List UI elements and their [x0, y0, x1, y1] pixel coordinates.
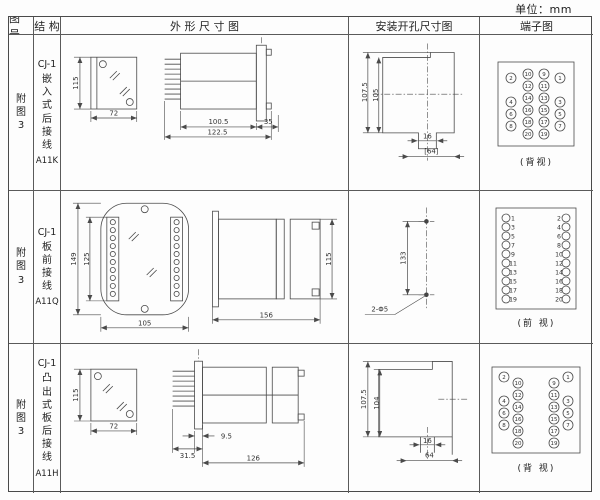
svg-text:6: 6 — [502, 410, 506, 416]
svg-text:19: 19 — [551, 440, 558, 446]
dim-front-width: 72 — [109, 422, 118, 430]
svg-text:12: 12 — [515, 392, 522, 398]
dim-front-width: 72 — [109, 109, 118, 117]
hole-size-label: 2-Φ5 — [371, 306, 388, 314]
svg-text:14: 14 — [525, 95, 532, 101]
row1-structure: CJ-1 嵌入式后接线 A11K — [34, 35, 61, 191]
svg-text:20: 20 — [555, 297, 563, 304]
svg-text:18: 18 — [555, 288, 563, 295]
model-label: CJ-1 — [38, 59, 57, 70]
model-code: A11K — [36, 156, 58, 166]
header-install: 安装开孔尺寸图 — [349, 17, 480, 35]
row3-terminal-cell: 2468101214161820911131517191357 (背 视) — [480, 344, 593, 493]
svg-text:4: 4 — [509, 99, 513, 105]
dim-cut-inner: 104 — [373, 395, 381, 409]
dim-span: 64 — [425, 451, 434, 459]
model-label: CJ-1 — [38, 227, 57, 238]
svg-text:12: 12 — [555, 261, 563, 268]
svg-text:12: 12 — [525, 83, 532, 89]
row1-fig-no: 附图3 — [9, 35, 34, 191]
svg-text:5: 5 — [511, 234, 515, 241]
terminal-caption: (背 视) — [518, 461, 556, 474]
svg-text:11: 11 — [541, 83, 548, 89]
dim-span: [64] — [424, 147, 439, 155]
dim-front-width: 105 — [138, 319, 151, 327]
svg-text:13: 13 — [509, 270, 517, 277]
svg-text:20: 20 — [515, 440, 522, 446]
row3-fig-no: 附图3 — [9, 344, 34, 493]
svg-text:2: 2 — [509, 75, 513, 81]
terminal-diagram-a11k: 2109112114141336161558181772019 — [480, 58, 593, 152]
dim-cut-outer: 107.5 — [361, 82, 369, 102]
svg-text:5: 5 — [558, 111, 562, 117]
row2-terminal-cell: 1357911131517192468101214161820 (前 视) — [480, 191, 593, 344]
svg-text:17: 17 — [509, 288, 517, 295]
svg-text:16: 16 — [515, 416, 522, 422]
row2-structure: CJ-1 板前接线 A11Q — [34, 191, 61, 344]
dim-flange: 9.5 — [221, 432, 232, 440]
row3-install-cell: 107.5 104 16 64 — [349, 344, 480, 493]
svg-text:3: 3 — [566, 398, 570, 404]
dim-cut-inner: 105 — [372, 88, 380, 101]
header-structure: 结 构 — [34, 17, 61, 35]
datasheet-page: 单位：mm 图 号 结 构 外 形 尺 寸 图 安装开孔尺寸图 端子图 附图3 … — [0, 0, 600, 500]
svg-text:1: 1 — [558, 75, 562, 81]
model-code: A11H — [35, 469, 58, 479]
svg-text:16: 16 — [555, 279, 563, 286]
svg-text:19: 19 — [541, 131, 548, 137]
svg-text:3: 3 — [558, 99, 562, 105]
row2-fig-no: 附图3 — [9, 191, 34, 344]
install-cutout-a11k: 107.5 105 16 [64] — [349, 37, 479, 189]
svg-text:19: 19 — [509, 297, 517, 304]
svg-text:10: 10 — [525, 71, 532, 77]
install-cutout-a11h: 107.5 104 16 64 — [349, 344, 479, 493]
svg-text:14: 14 — [555, 270, 563, 277]
unit-label: 单位：mm — [515, 1, 572, 17]
svg-text:6: 6 — [557, 234, 561, 241]
fig-label: 附图3 — [15, 93, 28, 133]
svg-text:14: 14 — [515, 404, 522, 410]
svg-text:11: 11 — [551, 392, 558, 398]
svg-text:8: 8 — [509, 123, 513, 129]
dim-front-height: 115 — [72, 388, 80, 401]
structure-label: 嵌入式后接线 — [41, 73, 54, 152]
svg-text:6: 6 — [509, 111, 513, 117]
row3-structure: CJ-1 凸出式板后接线 A11H — [34, 344, 61, 493]
header-terminal: 端子图 — [480, 17, 593, 35]
svg-text:15: 15 — [551, 416, 558, 422]
svg-text:8: 8 — [502, 422, 506, 428]
dim-body-depth: 126 — [247, 454, 260, 462]
svg-text:10: 10 — [515, 380, 522, 386]
dim-pins: 31.5 — [180, 451, 196, 459]
svg-text:4: 4 — [502, 398, 506, 404]
header-fig-no: 图 号 — [9, 17, 34, 35]
svg-text:18: 18 — [525, 119, 532, 125]
dim-front-inner: 125 — [83, 252, 91, 265]
svg-text:9: 9 — [552, 380, 556, 386]
svg-text:3: 3 — [511, 225, 515, 232]
dim-overall-depth: 122.5 — [207, 128, 227, 136]
svg-text:17: 17 — [551, 428, 558, 434]
svg-text:15: 15 — [541, 107, 548, 113]
header-outline: 外 形 尺 寸 图 — [61, 17, 349, 35]
row2-outline-cell: 149 125 105 156 — [61, 191, 349, 344]
side-view: 156 115 — [212, 211, 337, 324]
svg-text:17: 17 — [541, 119, 548, 125]
model-code: A11Q — [35, 297, 58, 307]
dim-side-length: 156 — [260, 311, 273, 319]
svg-text:7: 7 — [558, 123, 562, 129]
row1-install-cell: 107.5 105 16 [64] — [349, 35, 480, 191]
fig-label: 附图3 — [15, 399, 28, 439]
dim-slot: 16 — [423, 436, 432, 444]
fig-label: 附图3 — [15, 247, 28, 287]
svg-text:2: 2 — [502, 374, 506, 380]
dim-front-height: 115 — [72, 76, 80, 89]
svg-text:4: 4 — [557, 225, 561, 232]
dim-slot: 16 — [423, 132, 432, 140]
dim-body-depth: 100.5 — [208, 117, 228, 125]
svg-text:9: 9 — [511, 252, 515, 259]
svg-text:5: 5 — [566, 410, 570, 416]
row1-terminal-cell: 2109112114141336161558181772019 (背视) — [480, 35, 593, 191]
install-holes-a11q: 133 2-Φ5 — [349, 191, 479, 343]
terminal-diagram-a11q: 1357911131517192468101214161820 — [480, 205, 593, 313]
dim-hole-span: 133 — [400, 251, 408, 264]
outline-drawing-a11q: 149 125 105 156 — [61, 191, 348, 343]
svg-text:2: 2 — [557, 216, 561, 223]
svg-text:16: 16 — [525, 107, 532, 113]
svg-text:7: 7 — [511, 243, 515, 250]
svg-text:13: 13 — [541, 95, 548, 101]
row1-outline-cell: 115 72 1 — [61, 35, 349, 191]
side-view: 9.5 31.5 126 — [173, 349, 305, 467]
side-view: 100.5 35 122.5 — [165, 37, 279, 140]
svg-text:11: 11 — [509, 261, 517, 268]
outline-drawing-a11k: 115 72 1 — [61, 37, 348, 189]
terminal-diagram-a11h: 2468101214161820911131517191357 — [480, 364, 593, 458]
svg-text:15: 15 — [509, 279, 517, 286]
svg-text:20: 20 — [525, 131, 532, 137]
svg-text:1: 1 — [566, 374, 570, 380]
model-label: CJ-1 — [38, 358, 57, 369]
terminal-caption: (前 视) — [518, 316, 556, 329]
spec-table: 图 号 结 构 外 形 尺 寸 图 安装开孔尺寸图 端子图 附图3 CJ-1 嵌… — [8, 16, 592, 492]
structure-label: 凸出式板后接线 — [41, 372, 54, 464]
dim-side-height: 115 — [325, 252, 333, 265]
row3-outline-cell: 115 72 — [61, 344, 349, 493]
row2-install-cell: 133 2-Φ5 — [349, 191, 480, 344]
svg-text:7: 7 — [566, 422, 570, 428]
svg-text:8: 8 — [557, 243, 561, 250]
svg-text:1: 1 — [511, 216, 515, 223]
svg-text:13: 13 — [551, 404, 558, 410]
front-view: 115 72 — [72, 57, 137, 122]
dim-cut-outer: 107.5 — [360, 389, 368, 409]
structure-label: 板前接线 — [41, 241, 54, 294]
svg-text:10: 10 — [555, 252, 563, 259]
front-view: 149 125 105 — [70, 203, 189, 332]
terminal-caption: (背视) — [520, 155, 553, 168]
outline-drawing-a11h: 115 72 — [61, 344, 348, 493]
svg-text:9: 9 — [542, 71, 546, 77]
svg-text:18: 18 — [515, 428, 522, 434]
dim-front-height: 149 — [70, 252, 78, 265]
front-view: 115 72 — [72, 369, 137, 435]
